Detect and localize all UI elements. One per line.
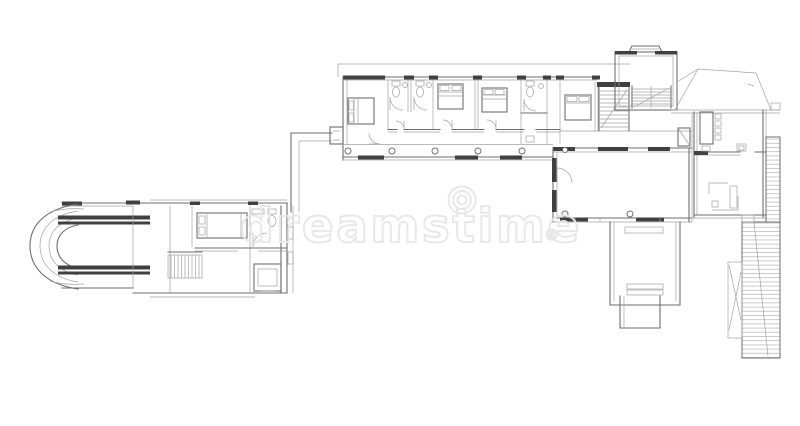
stair-tower	[615, 46, 677, 110]
bed-room1	[348, 98, 380, 144]
left-wing-stairs	[168, 252, 202, 278]
blueprint-canvas: dreamstime ®	[0, 0, 800, 426]
kitchen	[694, 183, 766, 218]
bed-room4	[565, 95, 591, 120]
bathroom-pair2	[521, 81, 547, 142]
dining-table	[700, 112, 721, 151]
stairs-wide	[632, 86, 671, 108]
patio-steps	[610, 222, 680, 328]
corridor-columns	[343, 145, 553, 161]
bed-small	[254, 264, 281, 291]
kitchen-counter	[709, 183, 738, 210]
bed-room2	[438, 84, 463, 109]
watermark-registered-icon: ®	[544, 226, 559, 244]
bed-room3	[482, 88, 507, 112]
hip-roof	[671, 69, 780, 113]
watermark-brand-text: dreamstime	[240, 199, 582, 254]
floor-plan-image: dreamstime ®	[0, 0, 800, 426]
stairs-narrow	[597, 82, 630, 131]
bedroom-wing	[338, 64, 692, 160]
deck-hatched	[728, 137, 780, 358]
